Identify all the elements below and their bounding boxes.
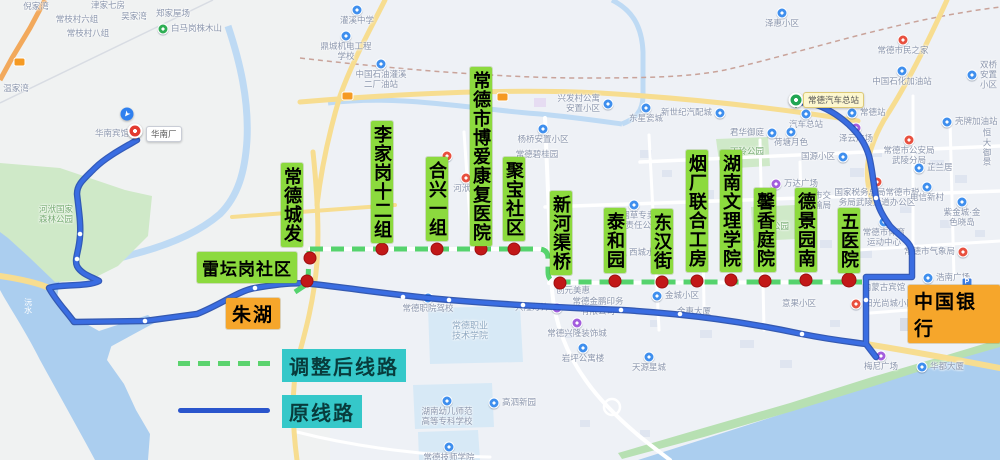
湖南幼儿师范 高等专科学校-icon[interactable] bbox=[442, 396, 453, 407]
poi-label: 岩坪公寓楼 bbox=[562, 354, 605, 364]
高泗新园-icon[interactable] bbox=[489, 398, 500, 409]
阳光尚城小区-icon[interactable] bbox=[851, 299, 862, 310]
poi-label: 高泗新园 bbox=[502, 398, 536, 408]
poi-label: 金惠大厦 bbox=[677, 307, 711, 317]
鼎城机电工程 学校-icon[interactable] bbox=[341, 31, 352, 42]
poi-icon[interactable] bbox=[442, 151, 453, 162]
poi-label: 常德市交 通运输局 bbox=[797, 191, 831, 211]
芷兰居-icon[interactable] bbox=[914, 163, 925, 174]
poi-label: 常德兴隆装饰城 bbox=[547, 329, 607, 339]
poi-label: 恒大御景 bbox=[981, 128, 994, 167]
poi-label: 白马岗株木山 bbox=[171, 24, 222, 34]
金城小区-icon[interactable] bbox=[652, 291, 663, 302]
常德市公安局 武陵分局-icon[interactable] bbox=[904, 135, 915, 146]
poi-label: 常枝村八组 bbox=[67, 29, 110, 39]
中国石油灌溪 二厂油站-icon[interactable] bbox=[376, 59, 387, 70]
poi-label: 湖南幼儿师范 高等专科学校 bbox=[421, 407, 472, 427]
poi-label: 泽惠小区 bbox=[765, 19, 799, 29]
poi-label: 常枝村六组 bbox=[56, 15, 99, 25]
poi-label: 锦都豪苑 bbox=[922, 331, 956, 341]
常德站-icon[interactable] bbox=[847, 108, 858, 119]
杨桥安置小区-icon[interactable] bbox=[538, 124, 549, 135]
poi-label: 梅尼广场 bbox=[864, 362, 898, 372]
poi-label: 紫金城·金色晓岛 bbox=[943, 208, 981, 228]
常德市民之家-icon[interactable] bbox=[898, 35, 909, 46]
常德兴隆装饰城-icon[interactable] bbox=[572, 318, 583, 329]
poi-label: 电信新村 bbox=[910, 193, 944, 203]
map-canvas[interactable]: 倪家湾津家七房吴家湾郑家屋场常枝村六组常枝村八组白马岗株木山温家湾华南宾馆河洑国… bbox=[0, 0, 1000, 460]
国家税务总局常德市税 务局武陵大道办公区-icon[interactable] bbox=[872, 177, 883, 188]
poi-label: 常德市体育 运动中心 bbox=[863, 228, 906, 248]
poi-label: 灌溪中学 bbox=[340, 16, 374, 26]
poi-label: 丁玲公园 bbox=[730, 147, 764, 157]
兴发村公寓 安置小区-icon[interactable] bbox=[603, 99, 614, 110]
poi-label: 河洑国家 森林公园 bbox=[39, 205, 73, 225]
poi-label: 西城水芯 bbox=[629, 248, 663, 258]
poi-label: 国家税务总局常德市税 务局武陵大道办公区 bbox=[834, 188, 919, 208]
poi-label: 中国石油灌溪 二厂油站 bbox=[355, 70, 406, 90]
浩南广场-icon[interactable] bbox=[923, 273, 934, 284]
灌溪中学-icon[interactable] bbox=[352, 5, 363, 16]
poi-label: 常德站 bbox=[860, 108, 886, 118]
白马岗株木山-icon[interactable] bbox=[158, 24, 169, 35]
poi-label: 中国石化加油站 bbox=[872, 77, 932, 87]
常德市体育 运动中心-icon[interactable] bbox=[879, 217, 890, 228]
poi-label: 常德市民之家 bbox=[877, 46, 928, 56]
西城水芯-icon[interactable] bbox=[616, 248, 627, 259]
poi-label: 常德碧桂园 bbox=[516, 150, 559, 160]
poi-label: 温家湾 bbox=[3, 84, 29, 94]
poi-label: 荷塘月色 bbox=[774, 138, 808, 148]
poi-label: 汽车总站 bbox=[789, 120, 823, 130]
锦都豪苑-icon[interactable] bbox=[959, 331, 970, 342]
常德烟草专卖局 有限责任公司-icon[interactable] bbox=[629, 200, 640, 211]
泽云广场-icon[interactable] bbox=[851, 123, 862, 134]
poi-label: 河洑镇 bbox=[453, 184, 479, 194]
国源小区-icon[interactable] bbox=[838, 152, 849, 163]
poi-label: 国源小区 bbox=[801, 152, 835, 162]
poi-label: 金城小区 bbox=[665, 291, 699, 301]
poi-label: 常德技师学院 bbox=[423, 453, 474, 460]
poi-label: 内蒙古宾馆 bbox=[863, 283, 906, 293]
poi-label: 万达广场 bbox=[784, 179, 818, 189]
双桥安置小区-icon[interactable] bbox=[967, 70, 978, 81]
poi-label: 吴家湾 bbox=[121, 12, 147, 22]
紫金城·金色晓岛-icon[interactable] bbox=[957, 197, 968, 208]
万达广场-icon[interactable] bbox=[771, 179, 782, 190]
兴隆灯饰-icon[interactable] bbox=[552, 303, 563, 314]
poi-label: 常德市气象局 bbox=[904, 247, 955, 257]
poi-label: 兴隆灯饰 bbox=[515, 303, 549, 313]
壳牌加油站-icon[interactable] bbox=[942, 117, 953, 128]
poi-label: 意果小区 bbox=[782, 299, 816, 309]
汽车总站-icon[interactable] bbox=[801, 109, 812, 120]
岩坪公寓楼-icon[interactable] bbox=[578, 343, 589, 354]
poi-label: 沅水 bbox=[23, 298, 32, 314]
poi-label: 东星瓷城 bbox=[629, 114, 663, 124]
poi-label: 倪家湾 bbox=[23, 2, 49, 12]
河洑镇-icon[interactable] bbox=[461, 173, 472, 184]
poi-label: 泽云广场 bbox=[839, 134, 873, 144]
电信新村-icon[interactable] bbox=[922, 182, 933, 193]
poi-label: 兴发村公寓 安置小区 bbox=[557, 94, 600, 114]
常德技师学院-icon[interactable] bbox=[444, 442, 455, 453]
poi-layer: 倪家湾津家七房吴家湾郑家屋场常枝村六组常枝村八组白马岗株木山温家湾华南宾馆河洑国… bbox=[0, 0, 1000, 460]
poi-label: 华南宾馆 bbox=[95, 129, 129, 139]
poi-icon[interactable]: P bbox=[962, 278, 973, 289]
poi-label: 常德职业 技术学院 bbox=[452, 321, 488, 342]
poi-label: 常德烟草专卖局 有限责任公司 bbox=[604, 211, 664, 231]
poi-label: 壳牌加油站 bbox=[955, 117, 998, 127]
poi-label: 文化公园 bbox=[755, 222, 789, 232]
poi-label: 双桥安置小区 bbox=[980, 60, 1000, 89]
常德市气象局-icon[interactable] bbox=[958, 247, 969, 258]
新世纪汽配城-icon[interactable] bbox=[715, 108, 726, 119]
poi-label: 创元美惠 bbox=[556, 286, 590, 296]
poi-label: 杨桥安置小区 bbox=[517, 135, 568, 145]
poi-label: 郑家屋场 bbox=[156, 9, 190, 19]
天源星城-icon[interactable] bbox=[644, 352, 655, 363]
poi-label: 常德职院驾校 bbox=[402, 304, 453, 314]
poi-label: 阳光尚城小区 bbox=[864, 299, 915, 309]
华都大厦-icon[interactable] bbox=[917, 362, 928, 373]
泽惠小区-icon[interactable] bbox=[777, 8, 788, 19]
poi-label: 天源星城 bbox=[632, 363, 666, 373]
常德职院驾校-icon[interactable] bbox=[423, 293, 434, 304]
poi-label: 鼎城机电工程 学校 bbox=[320, 42, 371, 62]
poi-label: 新世纪汽配城 bbox=[661, 108, 712, 118]
东星瓷城-icon[interactable] bbox=[641, 103, 652, 114]
梅尼广场-icon[interactable] bbox=[876, 351, 887, 362]
poi-label: 芷兰居 bbox=[927, 163, 953, 173]
poi-label: 常德金鹏印务 有限公司 bbox=[572, 297, 623, 317]
中国石化加油站-icon[interactable] bbox=[897, 66, 908, 77]
poi-label: 津家七房 bbox=[91, 1, 125, 11]
poi-label: 君华御庭 bbox=[730, 128, 764, 138]
poi-label: 华都大厦 bbox=[930, 362, 964, 372]
